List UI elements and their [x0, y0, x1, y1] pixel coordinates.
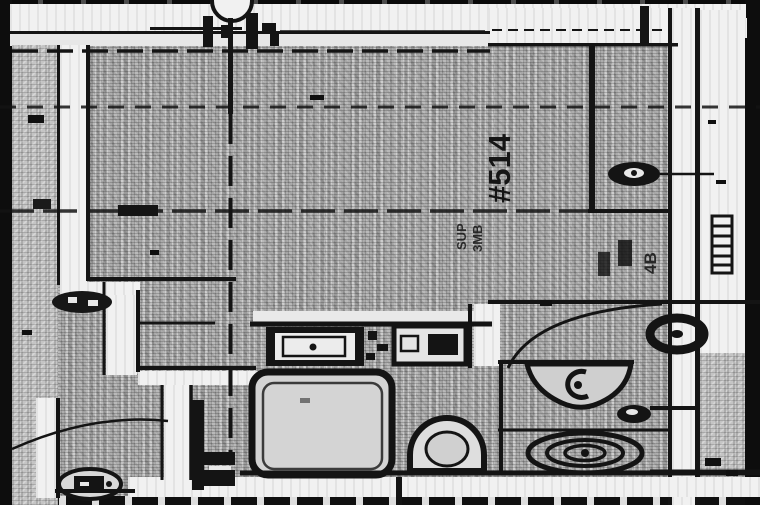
exhaust-fan-upper — [608, 162, 714, 186]
bathtub — [252, 372, 392, 475]
vanity-sink — [266, 327, 364, 366]
exhaust-fan-lower — [52, 291, 112, 313]
wall-hatch-bar — [712, 216, 732, 273]
grid-line-blob — [118, 205, 158, 216]
noise-blob-left — [33, 199, 51, 209]
room-sublabel-2: 3MB — [470, 225, 485, 252]
second-sink — [394, 326, 466, 364]
top-wall-stub — [640, 6, 649, 44]
floorplan-scan: #514 SUP 3MB 4B — [0, 0, 760, 505]
shaft-label: 4B — [641, 252, 660, 274]
room-number-label: #514 — [482, 133, 517, 203]
wash-basin — [410, 418, 484, 471]
door-swing-arc-bathroom — [508, 304, 662, 368]
grid-line-solid — [228, 18, 233, 114]
ceiling-fixture-donut — [650, 318, 704, 350]
top-wall-right-bottom-line — [488, 43, 678, 47]
toilet — [498, 362, 634, 407]
bottom-wall-stub — [396, 477, 402, 505]
door-swing-arc-entry — [12, 420, 168, 449]
door-hardware-symbol — [59, 469, 121, 499]
faucet-marks — [366, 331, 388, 360]
plan-linework: #514 SUP 3MB 4B — [0, 0, 760, 505]
floor-drain-rings — [498, 430, 670, 473]
toilet-flush-valve — [617, 405, 651, 423]
room-sublabel-1: SUP — [454, 223, 469, 250]
